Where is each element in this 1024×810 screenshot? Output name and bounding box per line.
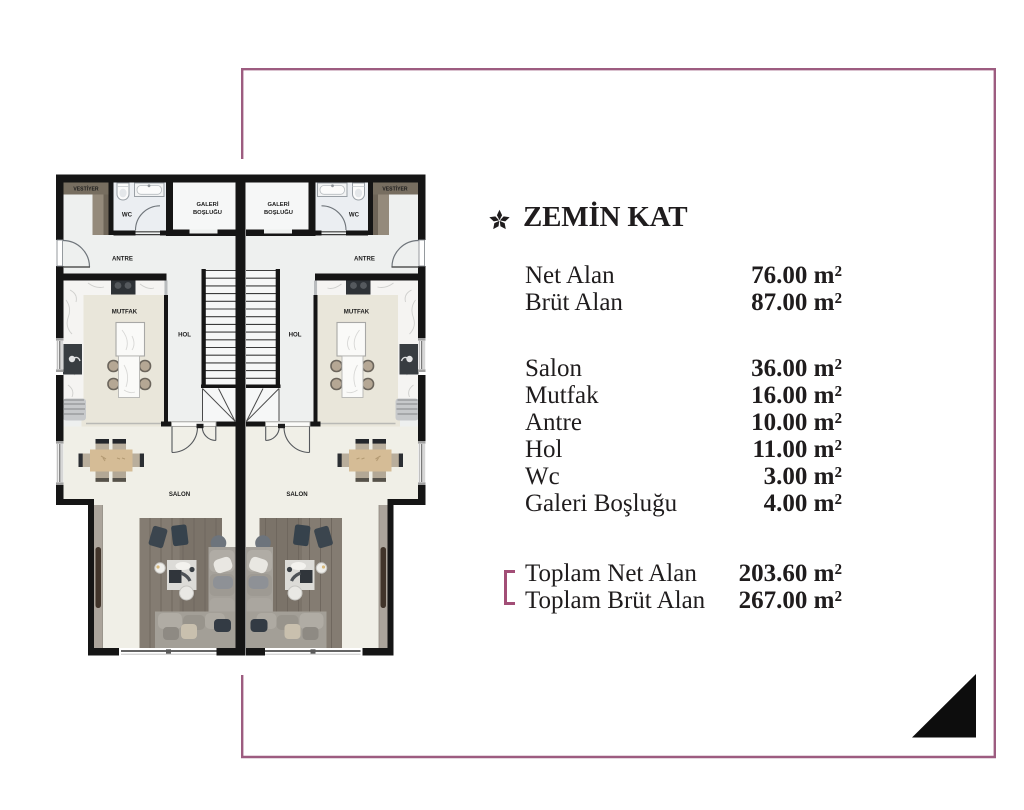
svg-text:HOL: HOL xyxy=(178,332,191,339)
svg-text:VESTİYER: VESTİYER xyxy=(73,186,99,193)
svg-text:ANTRE: ANTRE xyxy=(354,256,375,263)
svg-text:SALON: SALON xyxy=(169,491,190,498)
svg-text:HOL: HOL xyxy=(289,332,302,339)
svg-text:WC: WC xyxy=(349,212,360,219)
svg-text:MUTFAK: MUTFAK xyxy=(112,309,138,316)
svg-text:WC: WC xyxy=(122,212,133,219)
svg-text:BOŞLUĞU: BOŞLUĞU xyxy=(193,208,222,216)
svg-text:GALERİ: GALERİ xyxy=(197,201,219,208)
svg-text:BOŞLUĞU: BOŞLUĞU xyxy=(264,208,293,216)
svg-text:ANTRE: ANTRE xyxy=(112,256,133,263)
svg-text:GALERİ: GALERİ xyxy=(268,201,290,208)
svg-text:MUTFAK: MUTFAK xyxy=(344,309,370,316)
svg-text:VESTİYER: VESTİYER xyxy=(382,186,408,193)
svg-text:SALON: SALON xyxy=(286,491,307,498)
